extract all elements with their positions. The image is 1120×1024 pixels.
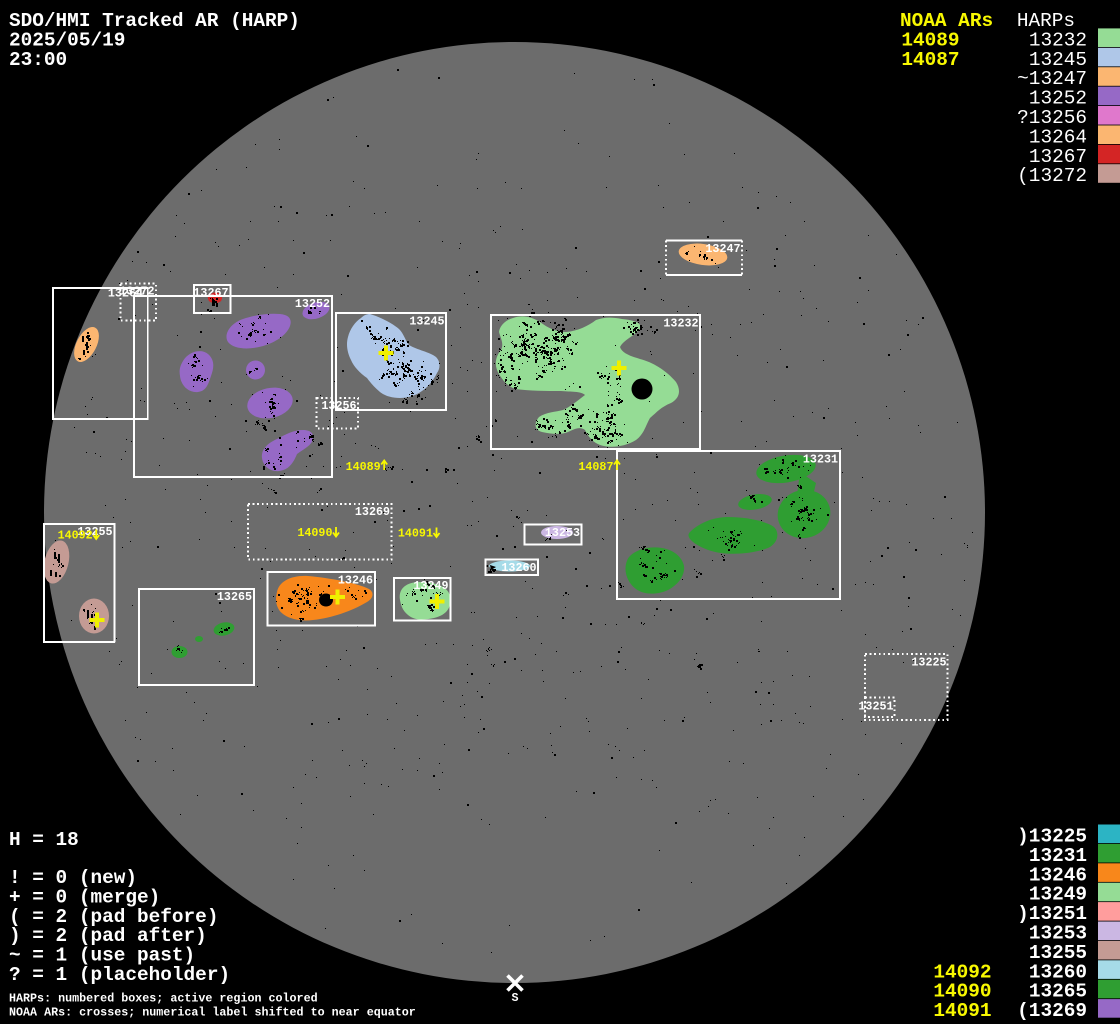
svg-text:13272: 13272 [119,285,154,299]
svg-text:13247: 13247 [705,242,740,256]
svg-text:13256: 13256 [321,399,356,413]
svg-text:13232: 13232 [663,317,698,331]
svg-text:13249: 13249 [413,579,448,593]
svg-text:13252: 13252 [295,297,330,311]
svg-text:14092: 14092 [58,529,93,543]
svg-text:14091: 14091 [398,527,433,541]
svg-text:13265: 13265 [217,590,252,604]
svg-text:23:00: 23:00 [9,49,67,71]
svg-text:14091: 14091 [933,1000,991,1022]
svg-text:14089: 14089 [346,460,381,474]
svg-text:13251: 13251 [858,700,893,714]
svg-text:13246: 13246 [338,574,373,588]
svg-text:13267: 13267 [193,286,228,300]
svg-text:13253: 13253 [545,526,580,540]
svg-text:? = 1 (placeholder): ? = 1 (placeholder) [9,964,230,986]
svg-text:13245: 13245 [409,315,444,329]
svg-text:13260: 13260 [501,561,536,575]
svg-text:14090: 14090 [297,526,332,540]
svg-text:HARPs: numbered boxes; active: HARPs: numbered boxes; active region col… [9,992,318,1006]
svg-text:NOAA ARs: crosses; numerical l: NOAA ARs: crosses; numerical label shift… [9,1006,416,1020]
svg-text:13269: 13269 [355,505,390,519]
svg-text:14087: 14087 [901,49,959,71]
svg-text:(13269: (13269 [1017,1000,1087,1022]
svg-text:13225: 13225 [911,656,946,670]
svg-text:S: S [511,991,518,1005]
svg-text:H = 18: H = 18 [9,829,79,851]
svg-text:14087: 14087 [578,460,613,474]
svg-text:(13272: (13272 [1017,165,1087,187]
svg-text:13231: 13231 [803,453,838,467]
